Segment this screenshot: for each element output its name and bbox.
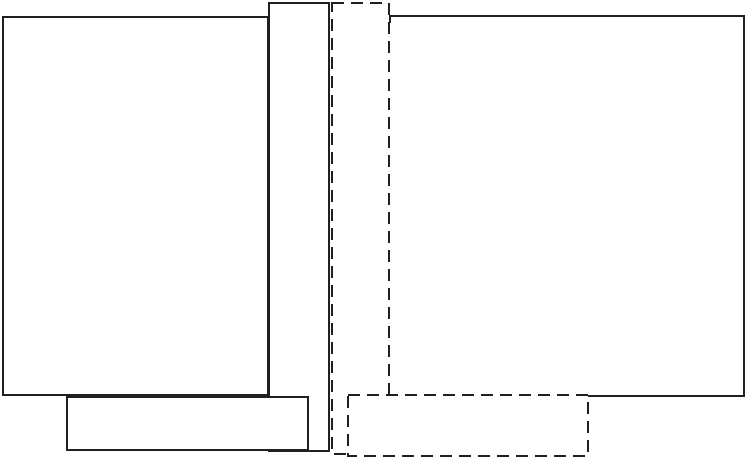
bottom-left-rect (67, 397, 308, 450)
rectangles-diagram (0, 0, 748, 459)
right-large-rect (390, 16, 744, 396)
bottom-center-dashed-outline (348, 395, 588, 456)
diagram-canvas (0, 0, 748, 459)
left-large-rect (3, 17, 268, 395)
center-tall-rect (269, 3, 329, 451)
center-tall-dashed-outline (332, 3, 389, 454)
